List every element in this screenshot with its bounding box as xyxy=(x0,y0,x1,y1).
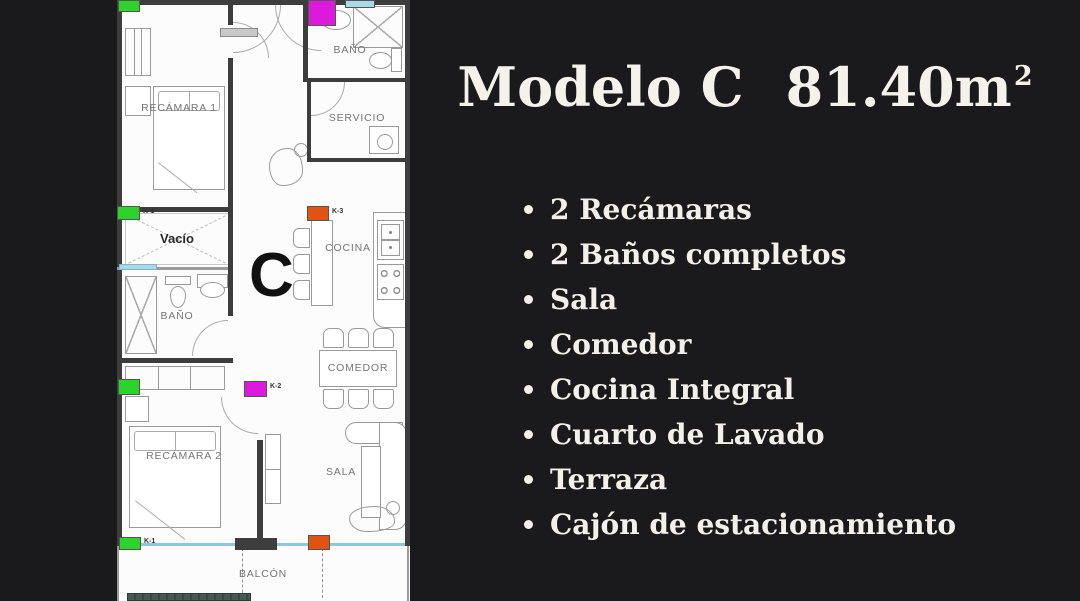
sliding-door-icon xyxy=(220,28,258,37)
feature-label: Cuarto de Lavado xyxy=(550,418,825,451)
wall-segment xyxy=(117,0,122,546)
feature-label: Sala xyxy=(550,283,617,316)
chair-icon xyxy=(348,328,369,348)
list-item: Cocina Integral xyxy=(524,367,956,412)
wall-segment xyxy=(257,440,263,543)
marker-orange-k3 xyxy=(307,206,329,221)
marker-orange-bottom xyxy=(308,535,330,550)
wall-segment xyxy=(228,58,233,208)
title-model: Modelo C xyxy=(457,55,743,119)
marker-blue-top xyxy=(345,0,375,8)
kitchen-island xyxy=(311,220,333,306)
marker-magenta-k2 xyxy=(244,381,267,397)
marker-green-mid xyxy=(118,379,140,395)
toilet-icon xyxy=(170,286,186,308)
wall-segment xyxy=(117,358,233,363)
shower-icon xyxy=(353,6,403,48)
bullet-icon xyxy=(524,385,533,394)
bullet-icon xyxy=(524,250,533,259)
marker-label-k1: K-1 xyxy=(143,208,154,215)
wall-segment xyxy=(228,212,233,316)
toilet-icon xyxy=(165,276,191,285)
balcony-door-wall xyxy=(235,538,277,550)
list-item: Cuarto de Lavado xyxy=(524,412,956,457)
marker-magenta-top xyxy=(308,0,336,26)
door-arc xyxy=(192,320,228,356)
list-item: 2 Recámaras xyxy=(524,187,956,232)
wall-segment xyxy=(117,546,119,601)
wall-segment xyxy=(303,78,410,82)
list-item: Sala xyxy=(524,277,956,322)
feature-label: Cajón de estacionamiento xyxy=(550,508,956,541)
nightstand-icon xyxy=(125,396,149,422)
floor-plan: RECÁMARA 1 Vacío BAÑO RECÁMARA 2 BAÑO SE… xyxy=(117,0,410,601)
washer-icon xyxy=(369,126,399,154)
bed-icon xyxy=(129,426,221,528)
title-area-superscript: 2 xyxy=(1014,61,1033,92)
chair-icon xyxy=(323,389,344,409)
plant-icon xyxy=(269,148,303,186)
chair-icon xyxy=(373,389,394,409)
tv-console-icon xyxy=(265,434,281,504)
kitchen-sink-icon xyxy=(377,220,404,260)
room-label-recamara1: RECÁMARA 1 xyxy=(129,102,229,114)
sink-icon xyxy=(200,282,225,298)
room-label-bano2: BAÑO xyxy=(147,310,207,322)
model-letter: C xyxy=(249,240,294,311)
door-arc xyxy=(311,82,345,116)
bullet-icon xyxy=(524,340,533,349)
chair-icon xyxy=(348,389,369,409)
room-label-balcon: BALCÓN xyxy=(225,568,301,580)
feature-label: Comedor xyxy=(550,328,691,361)
room-label-comedor: COMEDOR xyxy=(319,362,397,374)
stove-icon xyxy=(377,264,404,300)
page-title: Modelo C81.40m2 xyxy=(420,58,1070,117)
list-item: 2 Baños completos xyxy=(524,232,956,277)
wall-segment xyxy=(307,158,407,162)
plant-icon xyxy=(349,506,395,532)
hedge xyxy=(127,593,251,601)
toilet-icon xyxy=(391,48,402,72)
chair-icon xyxy=(323,328,344,348)
dashed-line xyxy=(322,548,323,598)
marker-green-k1 xyxy=(117,206,140,220)
feature-label: 2 Baños completos xyxy=(550,238,846,271)
door-arc xyxy=(221,397,258,434)
closet-icon xyxy=(125,366,225,390)
marker-label-k2: K-2 xyxy=(270,383,281,390)
room-label-sala: SALA xyxy=(319,466,363,478)
bullet-icon xyxy=(524,205,533,214)
bullet-icon xyxy=(524,430,533,439)
window-sill xyxy=(119,264,157,270)
feature-label: Terraza xyxy=(550,463,667,496)
list-item: Terraza xyxy=(524,457,956,502)
marker-green-k1-bottom xyxy=(119,537,141,550)
wall-segment xyxy=(228,5,233,25)
room-label-vacio: Vacío xyxy=(145,231,209,246)
room-label-bano1: BAÑO xyxy=(319,44,381,56)
marker-label-k1-bottom: K-1 xyxy=(144,538,155,545)
marker-label-k3: K-3 xyxy=(332,208,343,215)
features-list: 2 Recámaras 2 Baños completos Sala Comed… xyxy=(524,187,956,547)
feature-label: 2 Recámaras xyxy=(550,193,752,226)
room-label-servicio: SERVICIO xyxy=(322,112,392,124)
room-label-recamara2: RECÁMARA 2 xyxy=(129,450,239,462)
list-item: Comedor xyxy=(524,322,956,367)
bullet-icon xyxy=(524,520,533,529)
wall-segment xyxy=(407,546,409,601)
feature-label: Cocina Integral xyxy=(550,373,794,406)
bar-stool-icon xyxy=(293,228,310,248)
wall-segment xyxy=(307,82,311,158)
bullet-icon xyxy=(524,475,533,484)
marker-green-top-left xyxy=(118,0,140,12)
bar-stool-icon xyxy=(293,254,310,274)
bar-stool-icon xyxy=(293,280,310,300)
room-label-cocina: COCINA xyxy=(319,242,377,254)
dresser-icon xyxy=(125,28,151,76)
chair-icon xyxy=(373,328,394,348)
bullet-icon xyxy=(524,295,533,304)
list-item: Cajón de estacionamiento xyxy=(524,502,956,547)
title-area: 81.40m xyxy=(786,55,1012,119)
